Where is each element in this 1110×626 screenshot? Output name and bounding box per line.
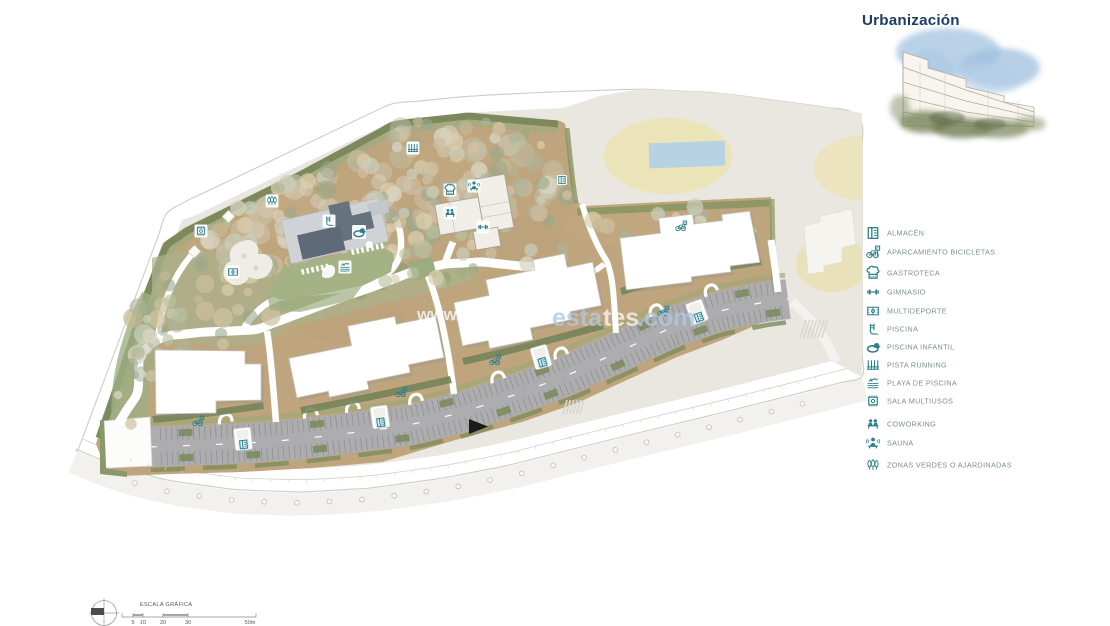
svg-text:APARCAMIENTO BICICLETAS: APARCAMIENTO BICICLETAS [887, 248, 995, 257]
svg-text:tes: tes [603, 304, 639, 332]
svg-text:ZONAS VERDES O AJARDINADAS: ZONAS VERDES O AJARDINADAS [887, 461, 1012, 470]
svg-text:PLAYA DE PISCINA: PLAYA DE PISCINA [887, 379, 957, 388]
svg-text:PISCINA: PISCINA [887, 325, 918, 334]
svg-text:COWORKING: COWORKING [887, 420, 936, 429]
svg-text:5: 5 [131, 620, 134, 626]
svg-text:50m: 50m [245, 620, 256, 626]
svg-text:30: 30 [185, 620, 191, 626]
svg-text:esta: esta [552, 304, 603, 332]
svg-text:ALMACÉN: ALMACÉN [887, 229, 924, 238]
svg-text:GIMNASIO: GIMNASIO [887, 288, 926, 297]
svg-text:GASTROTECA: GASTROTECA [887, 269, 940, 278]
svg-text:10: 10 [140, 620, 146, 626]
svg-text:PISCINA INFANTIL: PISCINA INFANTIL [887, 343, 955, 352]
svg-text:SALA MULTIUSOS: SALA MULTIUSOS [887, 397, 953, 406]
svg-text:20: 20 [160, 620, 166, 626]
svg-text:.spain: .spain [449, 305, 501, 325]
svg-text:.com: .com [637, 304, 695, 332]
svg-text:Urbanización: Urbanización [862, 12, 960, 29]
svg-text:ESCALA GRÁFICA: ESCALA GRÁFICA [140, 601, 192, 608]
svg-text:PISTA RUNNING: PISTA RUNNING [887, 361, 947, 370]
svg-text:MULTIDEPORTE: MULTIDEPORTE [887, 307, 947, 316]
svg-text:SAUNA: SAUNA [887, 439, 914, 448]
